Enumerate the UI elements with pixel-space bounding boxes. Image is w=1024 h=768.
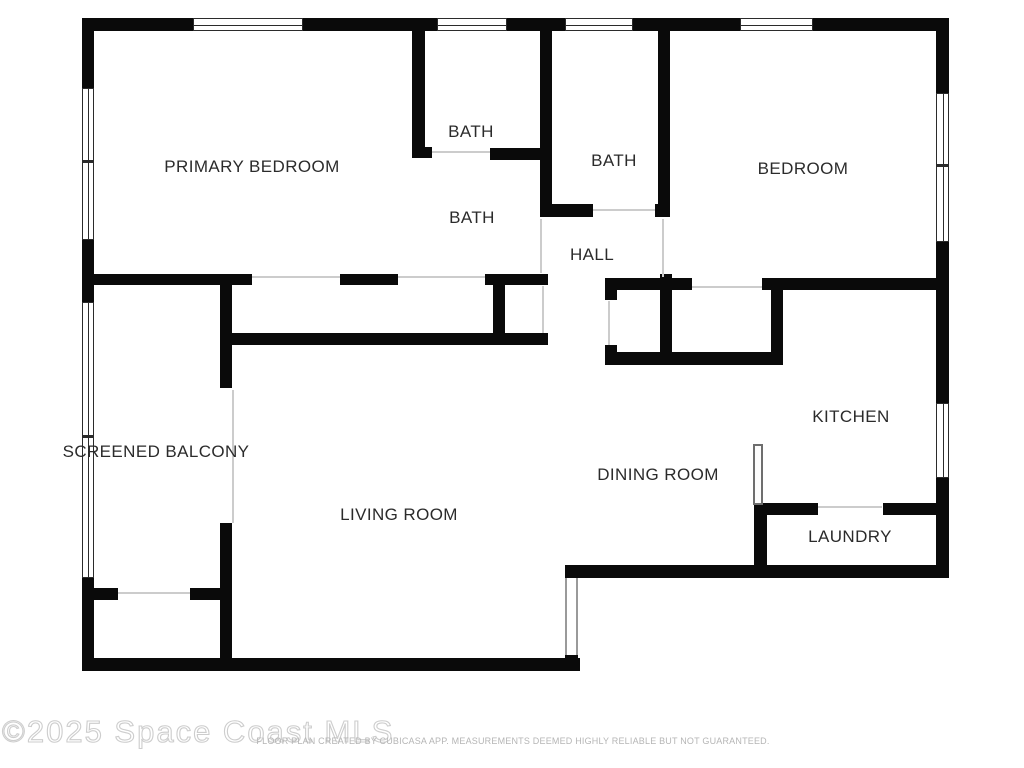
room-label-laundry: LAUNDRY (808, 527, 892, 547)
door-storage (118, 592, 190, 594)
window-left-balcony (82, 302, 94, 578)
room-label-dining-room: DINING ROOM (597, 465, 719, 485)
wall-bedroom-bottom-1 (605, 278, 692, 290)
window-left-primary (82, 88, 94, 240)
wall-closet-bottom (220, 333, 548, 345)
wall-bottom-living (82, 658, 580, 671)
wall-bedroom-bottom-2 (762, 278, 948, 290)
window-divider-left-2 (82, 435, 94, 438)
room-label-living-room: LIVING ROOM (340, 505, 458, 525)
wall-top-4 (633, 18, 740, 31)
room-label-hall: HALL (570, 245, 614, 265)
wall-midbath-right (658, 31, 670, 217)
door-leaf-kitchen (753, 444, 763, 505)
room-label-kitchen: KITCHEN (812, 407, 889, 427)
wall-right-1 (936, 18, 949, 93)
wall-storage-1 (94, 588, 118, 600)
wall-laundry-top-2 (883, 503, 936, 515)
window-top-bath (437, 18, 507, 31)
wall-top-3 (507, 18, 565, 31)
wall-left-1 (82, 18, 94, 88)
wall-laundry-top-1 (754, 503, 818, 515)
wall-top-5 (813, 18, 948, 31)
wall-midbath-left (540, 31, 552, 217)
wall-bath-top-bottom (490, 148, 540, 160)
wall-closet2-bottom (605, 352, 783, 365)
wall-closet-divider (493, 285, 505, 333)
wall-top-1 (82, 18, 193, 31)
wall-midbath-stub-left (540, 204, 593, 217)
window-divider-right-1 (936, 164, 949, 167)
wall-bath-divider-stub (412, 147, 432, 158)
door-bedroom-closet (692, 286, 762, 288)
window-right-kitchen (936, 403, 949, 478)
door-bath-top (432, 151, 490, 153)
door-bath-middle (593, 209, 655, 211)
room-label-primary-bedroom: PRIMARY BEDROOM (164, 157, 339, 177)
disclaimer-text: FLOOR PLAN CREATED BY CUBICASA APP. MEAS… (256, 736, 769, 746)
room-label-bath-middle: BATH (591, 151, 637, 171)
wall-closet-top-3 (485, 274, 548, 285)
wall-right-2 (936, 242, 949, 403)
wall-bath-divider (412, 31, 425, 158)
door-hall-closet (542, 286, 544, 333)
wall-step-cap (565, 655, 578, 663)
window-top-midbath (565, 18, 633, 31)
wall-closet-top-2 (340, 274, 398, 285)
window-top-bedroom (740, 18, 813, 31)
floor-plan-canvas: PRIMARY BEDROOMBATHBATHBATHHALLBEDROOMSC… (0, 0, 1024, 768)
wall-balcony-upper (220, 274, 232, 388)
window-top-primary (193, 18, 303, 31)
wall-left-2 (82, 240, 94, 302)
wall-right-3 (936, 478, 949, 578)
room-label-bath-primary: BATH (449, 208, 495, 228)
door-closet-slider-1 (252, 276, 340, 278)
window-right-bedroom (936, 93, 949, 242)
room-label-bedroom: BEDROOM (758, 159, 849, 179)
door-closet-slider-2 (398, 276, 485, 278)
wall-balcony-lower (220, 523, 232, 663)
wall-top-2 (303, 18, 437, 31)
door-bath-hall (540, 219, 542, 273)
room-label-bath-top: BATH (448, 122, 494, 142)
wall-storage-2 (190, 588, 220, 600)
wall-hallcloset-stub (605, 290, 617, 300)
slider-living-southeast (565, 578, 578, 655)
door-laundry (818, 506, 882, 508)
room-label-screened-balcony: SCREENED BALCONY (63, 442, 250, 462)
door-bedroom (662, 219, 664, 277)
door-linen-closet (608, 301, 610, 345)
window-divider-left-1 (82, 160, 94, 163)
